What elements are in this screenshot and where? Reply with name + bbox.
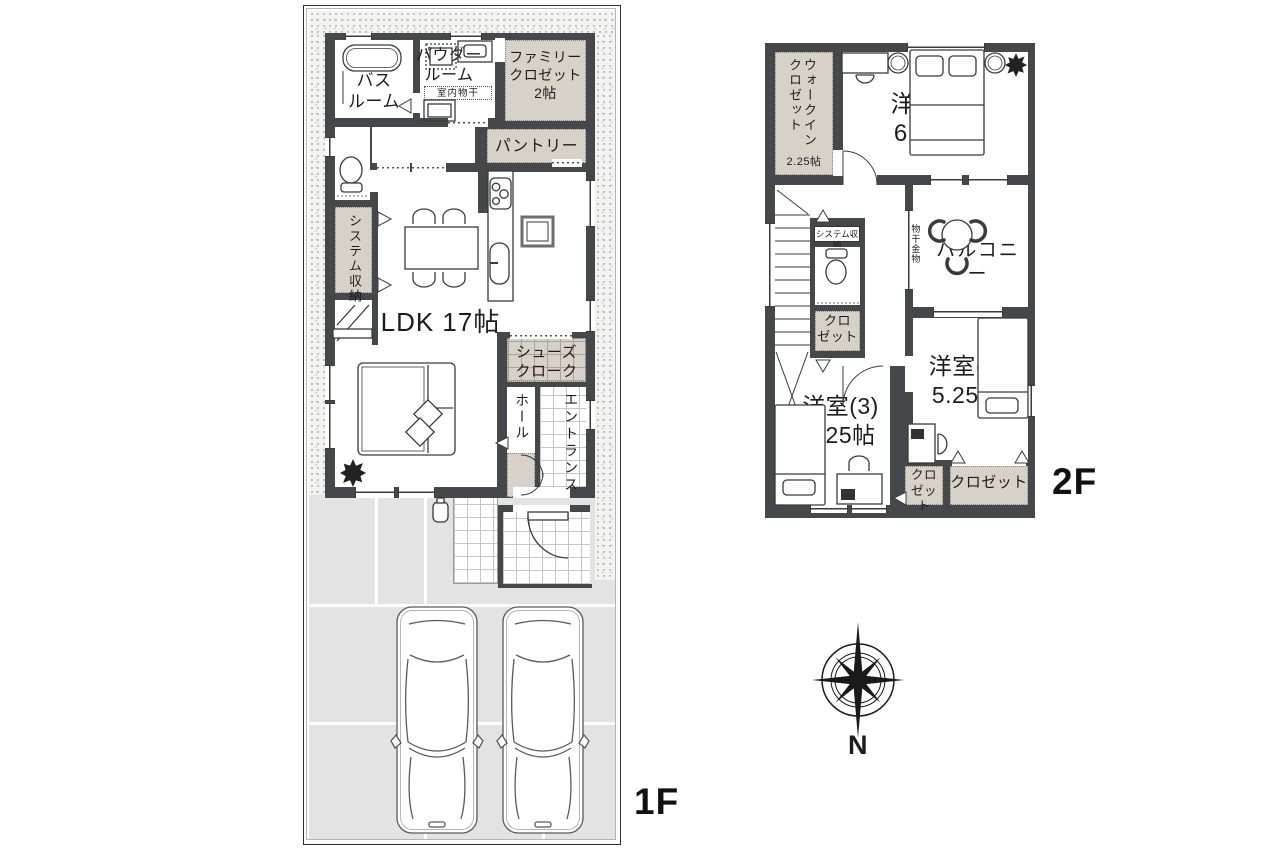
kitchen-stub-wall bbox=[478, 172, 488, 213]
window bbox=[325, 403, 335, 449]
window bbox=[345, 33, 372, 40]
plan-overlay bbox=[0, 0, 1280, 850]
sliding-door bbox=[412, 163, 446, 172]
window bbox=[1028, 385, 1035, 417]
paving-joint bbox=[424, 832, 427, 839]
ground-texture-right bbox=[595, 33, 615, 580]
front-door-opening bbox=[513, 487, 570, 498]
closet-mid-label: クロ ゼット bbox=[815, 313, 860, 346]
door-opening bbox=[495, 38, 505, 62]
window bbox=[810, 505, 848, 513]
entrance-label: エントランス bbox=[563, 392, 579, 494]
stairs-area-1f bbox=[335, 300, 372, 345]
shoes-closet-label: シューズ クローク bbox=[507, 344, 586, 382]
hall-label: ホール bbox=[514, 393, 530, 441]
window bbox=[930, 175, 963, 185]
room-toilet-2f bbox=[815, 247, 860, 305]
family-closet-label: ファミリー クロゼット 2帖 bbox=[505, 48, 586, 103]
laundry-hardware-label: 物干金物 bbox=[910, 224, 920, 264]
window bbox=[933, 307, 1003, 317]
floor-label-2f: 2F bbox=[1052, 461, 1097, 503]
pantry-label: パントリー bbox=[487, 137, 586, 157]
entrance-porch bbox=[503, 512, 590, 584]
ground-texture-left bbox=[309, 33, 325, 495]
paving-joint bbox=[309, 722, 615, 725]
window bbox=[765, 223, 775, 307]
walk-in-closet-label: ウォークイン クロゼット bbox=[786, 58, 816, 162]
paving-joint bbox=[424, 497, 427, 605]
window bbox=[586, 180, 595, 227]
ldk-label: LDK 17帖 bbox=[368, 306, 513, 339]
window bbox=[586, 400, 595, 430]
porch-frame-bottom bbox=[498, 584, 592, 588]
paving-joint bbox=[375, 495, 378, 605]
walk-in-closet-size: 2.25帖 bbox=[775, 156, 833, 170]
door-opening bbox=[370, 170, 378, 192]
paving-joint bbox=[542, 832, 545, 839]
balcony-label: バルコニー bbox=[928, 239, 1028, 287]
indoor-drying-label: 室内物干 bbox=[425, 88, 491, 100]
window bbox=[586, 300, 595, 332]
room-toilet-1f bbox=[335, 127, 370, 200]
window bbox=[450, 33, 482, 40]
porch-door-opening bbox=[513, 505, 570, 512]
floorplan-canvas: バス ルーム パウダー ルーム 室内物干 ファミリー クロゼット 2帖 パントリ… bbox=[0, 0, 1280, 850]
shoes-closet-opening bbox=[510, 332, 572, 339]
compass-north-label: N bbox=[840, 729, 876, 763]
powder-room-label: パウダー ルーム bbox=[416, 46, 482, 86]
room-ldk-right-strip bbox=[478, 332, 497, 487]
window bbox=[907, 43, 985, 52]
window bbox=[325, 365, 335, 401]
hall-corridor-1f bbox=[372, 127, 475, 163]
window bbox=[851, 505, 887, 513]
system-storage-label: システム収納 bbox=[346, 214, 361, 304]
approach-steps bbox=[453, 497, 498, 584]
door-opening bbox=[843, 175, 877, 185]
youshitsu2-label: 洋室(2) 5.25帖 bbox=[912, 352, 1022, 410]
closet-wide-label: クロゼット bbox=[950, 474, 1028, 493]
window bbox=[325, 137, 335, 157]
sliding-door bbox=[552, 159, 582, 167]
door-opening bbox=[833, 150, 843, 176]
door-opening bbox=[815, 358, 860, 366]
ground-texture-top bbox=[309, 11, 615, 33]
indoor-drying-box: 室内物干 bbox=[424, 86, 492, 100]
paving-joint bbox=[309, 604, 615, 607]
compass-icon bbox=[812, 622, 904, 738]
driveway-right bbox=[595, 580, 615, 839]
closet-small-label: クロ ゼット bbox=[905, 468, 943, 515]
window bbox=[398, 487, 435, 498]
sliding-door bbox=[448, 118, 488, 127]
system-storage-box-2f: システム収納 bbox=[814, 226, 860, 242]
bathroom-label: バス ルーム bbox=[333, 70, 415, 113]
youshitsu3-label: 洋室(3) 5.25帖 bbox=[783, 392, 898, 450]
floor-label-1f: 1F bbox=[634, 781, 679, 823]
sliding-door bbox=[377, 163, 410, 172]
youshitsu1-label: 洋室(1) 6.75帖 bbox=[868, 90, 993, 149]
room-ldk-lower bbox=[335, 345, 478, 487]
window bbox=[968, 175, 1008, 185]
window bbox=[355, 487, 395, 498]
closet-door bbox=[952, 458, 1026, 466]
